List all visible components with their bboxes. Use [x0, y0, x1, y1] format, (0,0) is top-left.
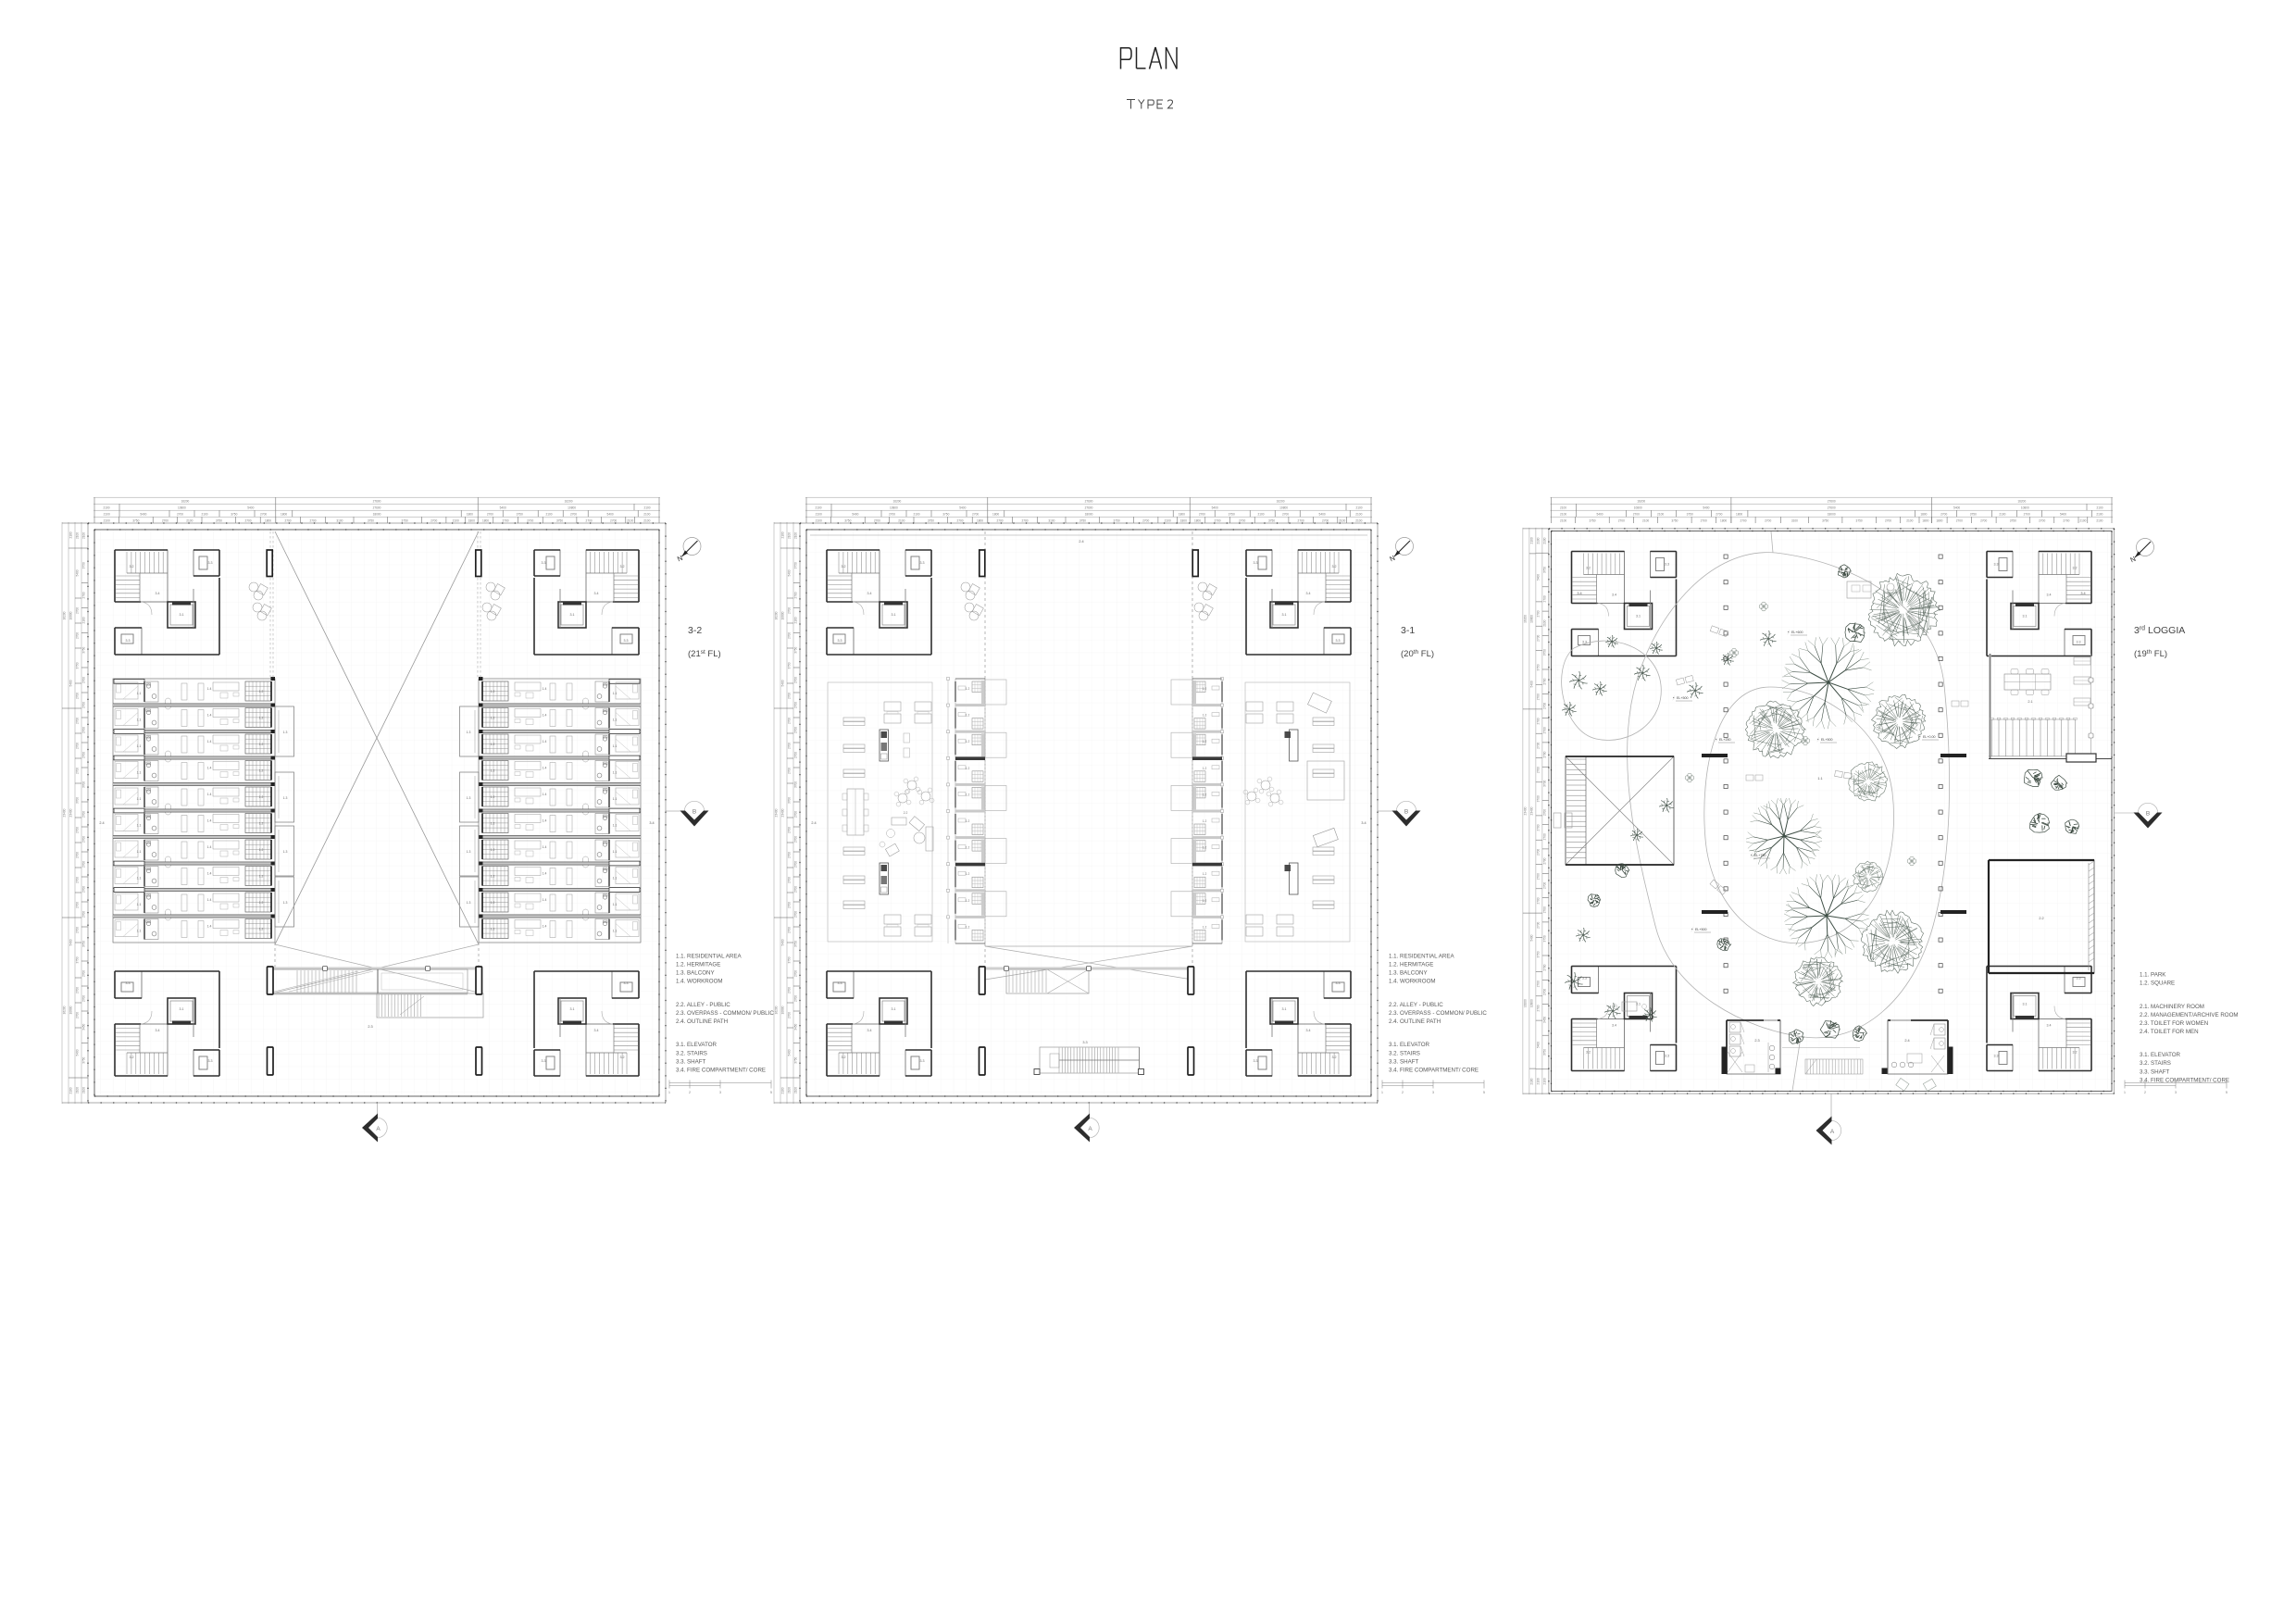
- svg-text:1.2: 1.2: [966, 767, 970, 770]
- svg-text:2700: 2700: [610, 519, 617, 523]
- svg-text:2100: 2100: [545, 513, 552, 517]
- svg-text:2700: 2700: [81, 752, 85, 758]
- svg-text:1.3: 1.3: [467, 901, 471, 905]
- svg-text:3.3: 3.3: [838, 981, 842, 985]
- svg-text:1.2: 1.2: [259, 795, 264, 799]
- svg-text:2700: 2700: [1542, 882, 1546, 889]
- svg-text:3.4. FIRE COMPARTMENT/ CORE: 3.4. FIRE COMPARTMENT/ CORE: [676, 1067, 766, 1073]
- svg-text:3.4: 3.4: [594, 1029, 599, 1032]
- svg-text:10800: 10800: [178, 506, 186, 510]
- svg-text:1.3: 1.3: [467, 850, 471, 854]
- svg-text:5400: 5400: [1529, 934, 1533, 941]
- svg-text:23400: 23400: [62, 808, 66, 817]
- svg-text:3750: 3750: [1542, 1049, 1546, 1056]
- svg-text:3.1. ELEVATOR: 3.1. ELEVATOR: [676, 1042, 717, 1048]
- svg-text:1800: 1800: [281, 513, 287, 517]
- svg-text:2700: 2700: [1542, 989, 1546, 995]
- svg-text:2100: 2100: [787, 532, 791, 539]
- svg-text:2700: 2700: [793, 970, 797, 977]
- svg-text:2100: 2100: [793, 532, 797, 539]
- svg-text:5400: 5400: [607, 513, 614, 517]
- svg-text:2100: 2100: [1560, 519, 1566, 523]
- svg-text:2100: 2100: [1542, 1078, 1546, 1084]
- svg-text:2700: 2700: [787, 607, 791, 614]
- svg-text:1.1: 1.1: [613, 930, 618, 933]
- svg-text:3750: 3750: [368, 519, 374, 523]
- svg-text:2700: 2700: [787, 852, 791, 858]
- svg-text:3750: 3750: [402, 519, 408, 523]
- svg-text:3.3: 3.3: [1582, 977, 1587, 981]
- svg-text:2700: 2700: [487, 513, 493, 517]
- svg-text:3750: 3750: [231, 513, 237, 517]
- svg-text:2100: 2100: [816, 519, 822, 523]
- svg-text:3.1: 3.1: [570, 613, 575, 617]
- svg-text:1.2: 1.2: [259, 822, 264, 826]
- svg-text:3750: 3750: [1079, 519, 1086, 523]
- svg-text:3750: 3750: [1268, 519, 1275, 523]
- svg-text:27600: 27600: [1828, 506, 1836, 510]
- svg-text:2100: 2100: [1355, 506, 1362, 510]
- svg-text:3700: 3700: [75, 797, 79, 804]
- svg-text:5400: 5400: [1529, 681, 1533, 687]
- svg-text:2100: 2100: [1542, 619, 1546, 626]
- svg-text:1: 1: [1381, 1091, 1383, 1094]
- svg-text:2100: 2100: [75, 532, 79, 539]
- svg-text:2100: 2100: [780, 1087, 784, 1093]
- svg-text:2.3. OVERPASS - COMMON/ PUBLI: 2.3. OVERPASS - COMMON/ PUBLIC: [1389, 1010, 1487, 1017]
- svg-text:3700: 3700: [1536, 795, 1540, 802]
- svg-text:10800: 10800: [1279, 506, 1288, 510]
- svg-text:1.1. PARK: 1.1. PARK: [2140, 972, 2166, 979]
- svg-text:3-2: 3-2: [688, 625, 702, 636]
- svg-text:10800: 10800: [568, 506, 576, 510]
- svg-text:1.1: 1.1: [137, 850, 142, 854]
- svg-text:EL+600: EL+600: [1791, 631, 1803, 634]
- svg-text:16200: 16200: [1523, 999, 1527, 1007]
- svg-text:3.4: 3.4: [2047, 1024, 2052, 1028]
- svg-text:2.4: 2.4: [1904, 1039, 1909, 1043]
- svg-text:1.2: 1.2: [966, 819, 970, 823]
- svg-text:2.4: 2.4: [811, 821, 816, 825]
- svg-text:5400: 5400: [1212, 506, 1218, 510]
- svg-text:3.2: 3.2: [2073, 567, 2078, 570]
- svg-text:2700: 2700: [787, 693, 791, 699]
- svg-text:3.1: 3.1: [2023, 1003, 2028, 1006]
- svg-text:2700: 2700: [75, 1012, 79, 1018]
- svg-text:2100: 2100: [2079, 519, 2086, 523]
- svg-text:2700: 2700: [1542, 857, 1546, 864]
- svg-text:2700: 2700: [1536, 610, 1540, 617]
- svg-text:3.2: 3.2: [842, 1056, 846, 1059]
- svg-text:3.2: 3.2: [1332, 1056, 1337, 1059]
- svg-text:2.3. OVERPASS - COMMON/ PUBLI: 2.3. OVERPASS - COMMON/ PUBLIC: [676, 1010, 774, 1017]
- svg-text:10800: 10800: [1529, 615, 1533, 623]
- svg-text:1.3. BALCONY: 1.3. BALCONY: [1389, 970, 1428, 977]
- svg-text:2700: 2700: [1980, 519, 1987, 523]
- svg-text:5: 5: [2226, 1091, 2227, 1094]
- svg-text:16200: 16200: [1523, 615, 1527, 623]
- svg-text:2700: 2700: [793, 752, 797, 758]
- svg-text:2700: 2700: [75, 902, 79, 908]
- svg-text:2700: 2700: [1536, 718, 1540, 724]
- svg-text:2700: 2700: [570, 513, 577, 517]
- svg-text:1800: 1800: [1194, 519, 1201, 523]
- svg-text:3750: 3750: [556, 519, 563, 523]
- svg-text:16200: 16200: [774, 1006, 778, 1014]
- svg-text:3.3: 3.3: [208, 1059, 213, 1063]
- svg-text:2700: 2700: [81, 727, 85, 733]
- svg-text:2700: 2700: [260, 513, 267, 517]
- svg-text:3.1: 3.1: [1282, 1007, 1287, 1011]
- svg-text:1.2: 1.2: [966, 925, 970, 929]
- svg-text:1.1: 1.1: [137, 718, 142, 722]
- svg-text:3750: 3750: [81, 562, 85, 568]
- svg-text:2700: 2700: [793, 995, 797, 1002]
- svg-text:27600: 27600: [1828, 500, 1836, 504]
- svg-text:EL+0.00: EL+0.00: [1923, 735, 1936, 739]
- svg-text:3.1: 3.1: [180, 613, 184, 617]
- svg-text:3450: 3450: [1542, 1017, 1546, 1023]
- svg-text:2700: 2700: [874, 519, 880, 523]
- svg-text:3700: 3700: [1542, 781, 1546, 787]
- svg-text:2700: 2700: [1536, 743, 1540, 749]
- svg-text:16200: 16200: [62, 611, 66, 619]
- svg-text:5400: 5400: [1703, 506, 1709, 510]
- svg-text:3750: 3750: [942, 513, 949, 517]
- svg-text:2700: 2700: [793, 811, 797, 818]
- svg-text:2700: 2700: [75, 827, 79, 833]
- svg-text:2.4: 2.4: [99, 821, 104, 825]
- svg-text:23400: 23400: [69, 808, 72, 817]
- svg-text:3.3: 3.3: [1082, 1041, 1087, 1044]
- svg-text:2700: 2700: [1536, 873, 1540, 880]
- svg-text:1.4. WORKROOM: 1.4. WORKROOM: [676, 979, 723, 985]
- svg-text:2700: 2700: [75, 632, 79, 639]
- svg-text:1: 1: [2124, 1091, 2126, 1094]
- svg-text:2100: 2100: [816, 513, 822, 517]
- svg-text:3750: 3750: [1542, 935, 1546, 942]
- svg-text:3.2: 3.2: [130, 565, 134, 568]
- svg-text:23400: 23400: [1529, 806, 1533, 815]
- svg-text:1.4: 1.4: [543, 767, 547, 770]
- svg-text:1.1: 1.1: [1817, 777, 1822, 781]
- svg-text:10800: 10800: [2021, 506, 2029, 510]
- svg-text:10800: 10800: [780, 611, 784, 619]
- svg-text:3.2. STAIRS: 3.2. STAIRS: [676, 1050, 707, 1056]
- svg-text:3.4: 3.4: [1306, 1029, 1311, 1032]
- svg-text:3.1: 3.1: [180, 1007, 184, 1011]
- svg-text:EL+750: EL+750: [1754, 854, 1766, 857]
- svg-text:16200: 16200: [181, 500, 189, 504]
- svg-text:3450: 3450: [81, 1023, 85, 1030]
- svg-text:3750: 3750: [1542, 649, 1546, 656]
- svg-text:1800: 1800: [1920, 513, 1927, 517]
- svg-text:3.4. FIRE COMPARTMENT/ CORE: 3.4. FIRE COMPARTMENT/ CORE: [1389, 1067, 1479, 1073]
- svg-text:3: 3: [719, 1091, 721, 1094]
- svg-text:2700: 2700: [309, 519, 316, 523]
- svg-text:1.2: 1.2: [491, 743, 495, 746]
- svg-text:2100: 2100: [75, 1087, 79, 1093]
- svg-text:3.2: 3.2: [1586, 1051, 1591, 1055]
- svg-text:2700: 2700: [889, 513, 895, 517]
- svg-text:2700: 2700: [793, 727, 797, 733]
- svg-text:3.3: 3.3: [1994, 1055, 1999, 1058]
- svg-text:2100: 2100: [81, 532, 85, 539]
- svg-text:1.4: 1.4: [543, 819, 547, 823]
- svg-text:1.4: 1.4: [207, 845, 212, 849]
- svg-text:27600: 27600: [373, 506, 381, 510]
- svg-text:2700: 2700: [1536, 981, 1540, 987]
- svg-text:EL+250: EL+250: [1719, 738, 1731, 742]
- svg-text:3.1: 3.1: [892, 613, 896, 617]
- svg-text:3.3. SHAFT: 3.3. SHAFT: [2140, 1068, 2170, 1075]
- svg-text:2700: 2700: [1716, 513, 1722, 517]
- svg-text:2100: 2100: [104, 513, 110, 517]
- svg-text:1.1: 1.1: [613, 692, 618, 695]
- svg-text:3750: 3750: [1822, 519, 1828, 523]
- svg-text:5400: 5400: [75, 1049, 79, 1056]
- svg-text:1.2: 1.2: [966, 872, 970, 876]
- svg-text:1800: 1800: [467, 513, 473, 517]
- svg-text:1.1: 1.1: [613, 797, 618, 801]
- svg-text:1.1: 1.1: [613, 771, 618, 775]
- svg-text:3700: 3700: [793, 781, 797, 788]
- svg-text:3.1: 3.1: [1282, 613, 1287, 617]
- svg-text:1.2: 1.2: [966, 714, 970, 718]
- svg-text:3750: 3750: [1542, 567, 1546, 573]
- svg-text:1.2: 1.2: [491, 901, 495, 905]
- svg-text:2700: 2700: [1940, 513, 1947, 517]
- svg-text:1.4: 1.4: [543, 714, 547, 718]
- svg-text:B: B: [2146, 810, 2150, 817]
- svg-text:16200: 16200: [1637, 500, 1645, 504]
- svg-text:2: 2: [689, 1091, 691, 1094]
- svg-text:5400: 5400: [1536, 1042, 1540, 1048]
- svg-text:3750: 3750: [1671, 519, 1678, 523]
- svg-text:2700: 2700: [75, 877, 79, 883]
- svg-text:3750: 3750: [75, 662, 79, 668]
- svg-text:2700: 2700: [1536, 897, 1540, 904]
- svg-text:1.2: 1.2: [966, 846, 970, 850]
- svg-text:2100: 2100: [104, 519, 110, 523]
- svg-text:2100: 2100: [69, 1087, 72, 1093]
- svg-text:2700: 2700: [586, 519, 593, 523]
- svg-text:1.4: 1.4: [207, 793, 212, 796]
- svg-text:1.2: 1.2: [1203, 793, 1207, 796]
- svg-text:2700: 2700: [75, 693, 79, 699]
- svg-text:1.3: 1.3: [467, 731, 471, 734]
- svg-text:1: 1: [668, 1091, 670, 1094]
- svg-text:5400: 5400: [780, 939, 784, 945]
- svg-text:1.1. RESIDENTIAL AREA: 1.1. RESIDENTIAL AREA: [676, 954, 742, 960]
- svg-text:1800: 1800: [1180, 519, 1187, 523]
- svg-text:3.2: 3.2: [1586, 567, 1591, 570]
- svg-text:2700: 2700: [75, 768, 79, 774]
- svg-text:1.4: 1.4: [207, 714, 212, 718]
- svg-text:3.3: 3.3: [542, 1059, 546, 1063]
- svg-text:2700: 2700: [1142, 519, 1149, 523]
- svg-text:18000: 18000: [1085, 513, 1093, 517]
- svg-text:1.4: 1.4: [543, 740, 547, 743]
- svg-text:2100: 2100: [1906, 519, 1913, 523]
- svg-text:16200: 16200: [565, 500, 573, 504]
- svg-text:3.1: 3.1: [2023, 615, 2028, 618]
- svg-text:2100: 2100: [1257, 513, 1264, 517]
- svg-text:2700: 2700: [75, 927, 79, 933]
- svg-text:3750: 3750: [132, 519, 139, 523]
- svg-text:(21st FL): (21st FL): [688, 649, 721, 659]
- svg-text:2700: 2700: [1740, 519, 1746, 523]
- svg-text:1.3. BALCONY: 1.3. BALCONY: [676, 970, 715, 977]
- svg-text:1.2: 1.2: [1203, 687, 1207, 691]
- svg-text:18000: 18000: [373, 513, 381, 517]
- svg-text:3450: 3450: [793, 1023, 797, 1030]
- svg-text:3750: 3750: [1536, 664, 1540, 670]
- svg-text:2.3: 2.3: [368, 1025, 372, 1029]
- svg-text:3.4: 3.4: [594, 592, 599, 595]
- svg-text:5400: 5400: [2060, 513, 2066, 517]
- svg-text:3.3: 3.3: [1336, 639, 1341, 643]
- svg-text:1800: 1800: [468, 519, 475, 523]
- svg-text:2700: 2700: [284, 519, 291, 523]
- svg-text:2700: 2700: [787, 1012, 791, 1018]
- svg-text:2100: 2100: [1536, 537, 1540, 543]
- svg-text:2700: 2700: [972, 513, 979, 517]
- svg-text:1.1: 1.1: [137, 903, 142, 906]
- svg-text:3750: 3750: [793, 1056, 797, 1063]
- svg-text:2700: 2700: [81, 836, 85, 843]
- svg-text:2700: 2700: [1542, 906, 1546, 913]
- svg-text:2100: 2100: [186, 519, 193, 523]
- svg-text:2700: 2700: [996, 519, 1003, 523]
- svg-text:3.2. STAIRS: 3.2. STAIRS: [1389, 1050, 1420, 1056]
- svg-text:3750: 3750: [793, 646, 797, 653]
- svg-text:3-1: 3-1: [1401, 625, 1415, 636]
- svg-text:1.4: 1.4: [207, 872, 212, 876]
- svg-text:1.2: 1.2: [1203, 925, 1207, 929]
- svg-text:1.2: 1.2: [491, 822, 495, 826]
- svg-text:3.3: 3.3: [208, 561, 213, 565]
- svg-text:3750: 3750: [1856, 519, 1863, 523]
- svg-text:2100: 2100: [1657, 513, 1664, 517]
- svg-text:2700: 2700: [81, 811, 85, 818]
- svg-text:2100: 2100: [787, 1087, 791, 1093]
- svg-text:5400: 5400: [780, 680, 784, 686]
- svg-text:1.2: 1.2: [1203, 714, 1207, 718]
- svg-text:3.1: 3.1: [892, 1007, 896, 1011]
- svg-text:1.2: 1.2: [966, 899, 970, 903]
- svg-text:1800: 1800: [992, 513, 999, 517]
- svg-text:3.4: 3.4: [1361, 821, 1366, 825]
- svg-text:16200: 16200: [892, 500, 901, 504]
- svg-text:5400: 5400: [69, 939, 72, 945]
- svg-text:10800: 10800: [780, 1006, 784, 1014]
- svg-text:2700: 2700: [162, 519, 168, 523]
- svg-text:1.1: 1.1: [613, 744, 618, 748]
- svg-text:1.2: 1.2: [259, 743, 264, 746]
- svg-text:1.2: 1.2: [491, 795, 495, 799]
- svg-text:3750: 3750: [2010, 519, 2016, 523]
- svg-text:3.3: 3.3: [624, 981, 629, 985]
- svg-text:1.2: 1.2: [259, 901, 264, 905]
- svg-text:2700: 2700: [502, 519, 508, 523]
- svg-text:1.2. HERMITAGE: 1.2. HERMITAGE: [1389, 962, 1433, 968]
- svg-text:2700: 2700: [793, 886, 797, 893]
- svg-text:3.3: 3.3: [1254, 1059, 1258, 1063]
- svg-text:3700: 3700: [787, 797, 791, 804]
- svg-text:27600: 27600: [1085, 500, 1093, 504]
- svg-text:3750: 3750: [787, 662, 791, 668]
- svg-text:2700: 2700: [81, 970, 85, 977]
- svg-text:3.2: 3.2: [1332, 565, 1337, 568]
- svg-text:1.2: 1.2: [491, 769, 495, 773]
- svg-text:2700: 2700: [787, 827, 791, 833]
- svg-text:1.2: 1.2: [259, 769, 264, 773]
- svg-text:18000: 18000: [1828, 513, 1836, 517]
- svg-text:2100: 2100: [2096, 519, 2103, 523]
- svg-text:3750: 3750: [793, 941, 797, 947]
- svg-text:3750: 3750: [81, 1056, 85, 1063]
- svg-text:3.3: 3.3: [1254, 561, 1258, 565]
- svg-text:2100: 2100: [627, 519, 633, 523]
- svg-text:3.1. ELEVATOR: 3.1. ELEVATOR: [2140, 1052, 2181, 1058]
- svg-text:3.3. SHAFT: 3.3. SHAFT: [676, 1058, 706, 1065]
- svg-text:2: 2: [2144, 1091, 2146, 1094]
- svg-text:2700: 2700: [81, 592, 85, 598]
- svg-text:2700: 2700: [430, 519, 437, 523]
- svg-text:1800: 1800: [977, 519, 983, 523]
- svg-text:3750: 3750: [81, 646, 85, 653]
- svg-text:1.4: 1.4: [207, 687, 212, 691]
- svg-text:2.1: 2.1: [2028, 700, 2032, 704]
- svg-text:5400: 5400: [75, 569, 79, 576]
- svg-text:2700: 2700: [787, 877, 791, 883]
- svg-text:3.4: 3.4: [1577, 592, 1581, 595]
- svg-text:3.3: 3.3: [542, 561, 546, 565]
- svg-text:3.2: 3.2: [842, 565, 846, 568]
- svg-text:2100: 2100: [2096, 506, 2103, 510]
- svg-text:2.2. ALLEY - PUBLIC: 2.2. ALLEY - PUBLIC: [676, 1002, 730, 1008]
- svg-text:3.4: 3.4: [649, 821, 654, 825]
- svg-text:2100: 2100: [1355, 513, 1362, 517]
- svg-text:5400: 5400: [959, 506, 966, 510]
- svg-text:2.4. OUTLINE PATH: 2.4. OUTLINE PATH: [1389, 1018, 1441, 1025]
- svg-text:2100: 2100: [1529, 537, 1533, 543]
- svg-text:1.1: 1.1: [137, 771, 142, 775]
- svg-text:2700: 2700: [2024, 513, 2030, 517]
- svg-text:1.1: 1.1: [613, 903, 618, 906]
- svg-text:2700: 2700: [1239, 519, 1245, 523]
- svg-text:2700: 2700: [1214, 519, 1220, 523]
- svg-text:3.3: 3.3: [920, 561, 925, 565]
- svg-text:16200: 16200: [774, 611, 778, 619]
- svg-text:3.3: 3.3: [838, 639, 842, 643]
- svg-text:10800: 10800: [890, 506, 898, 510]
- svg-text:2700: 2700: [793, 702, 797, 708]
- svg-text:2700: 2700: [793, 677, 797, 683]
- svg-text:2700: 2700: [527, 519, 533, 523]
- svg-text:2700: 2700: [244, 519, 251, 523]
- svg-text:2100: 2100: [1999, 513, 2005, 517]
- svg-text:2.1. MACHINERY ROOM: 2.1. MACHINERY ROOM: [2140, 1004, 2204, 1010]
- svg-text:1.2: 1.2: [259, 717, 264, 720]
- svg-text:1.2: 1.2: [491, 690, 495, 693]
- svg-text:3.3: 3.3: [1336, 981, 1341, 985]
- svg-text:2700: 2700: [1542, 727, 1546, 733]
- svg-text:2100: 2100: [453, 519, 459, 523]
- svg-text:2700: 2700: [787, 927, 791, 933]
- svg-text:1.3: 1.3: [283, 731, 288, 734]
